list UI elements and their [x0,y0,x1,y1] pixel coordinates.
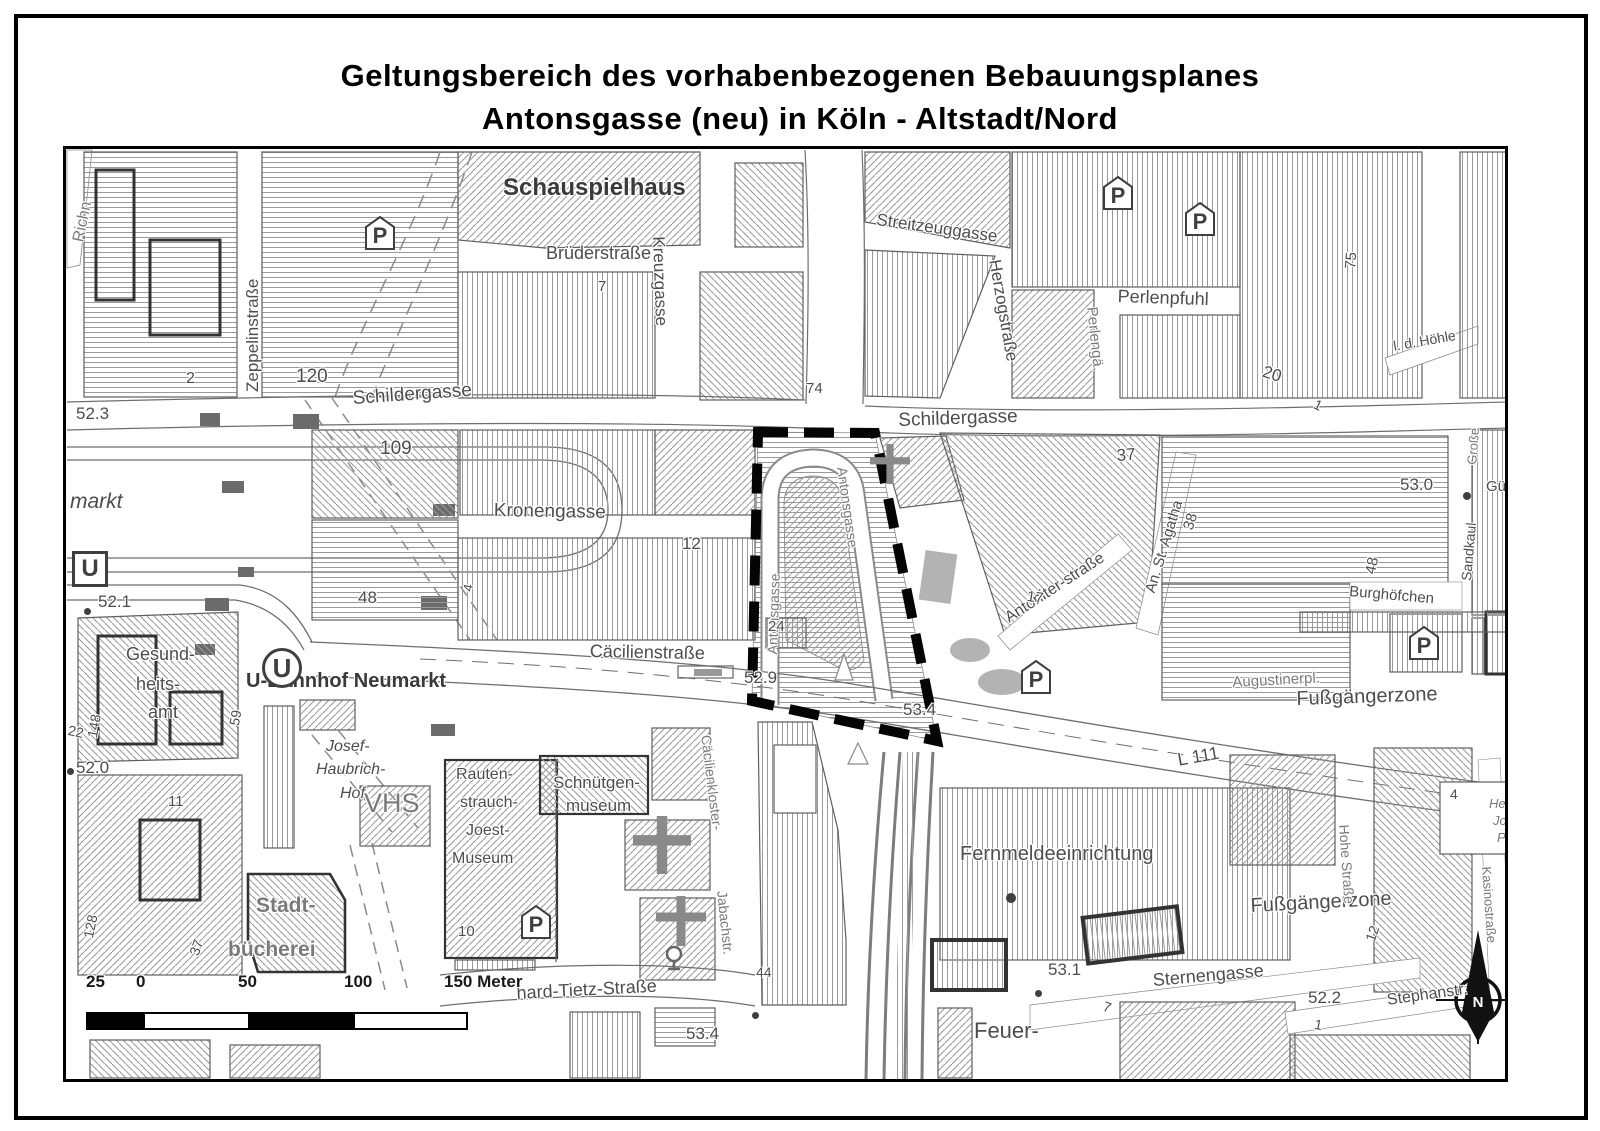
map-frame-border [63,146,1508,1082]
plan-document-page: Geltungsbereich des vorhabenbezogenen Be… [0,0,1600,1131]
title-line-2: Antonsgasse (neu) in Köln - Altstadt/Nor… [0,97,1600,140]
page-title: Geltungsbereich des vorhabenbezogenen Be… [0,54,1600,140]
title-line-1: Geltungsbereich des vorhabenbezogenen Be… [0,54,1600,97]
